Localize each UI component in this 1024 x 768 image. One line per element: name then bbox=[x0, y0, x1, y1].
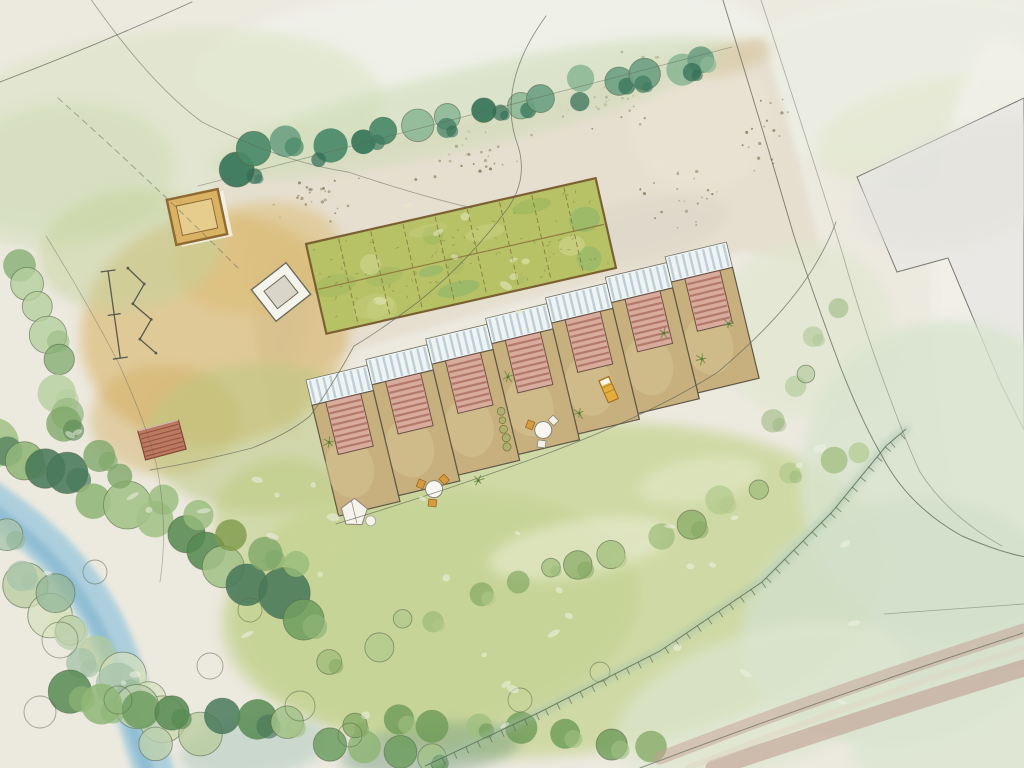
painting-layers bbox=[0, 0, 1024, 768]
site-plan-watercolor bbox=[0, 0, 1024, 768]
watercolor-site-plan-page bbox=[0, 0, 1024, 768]
